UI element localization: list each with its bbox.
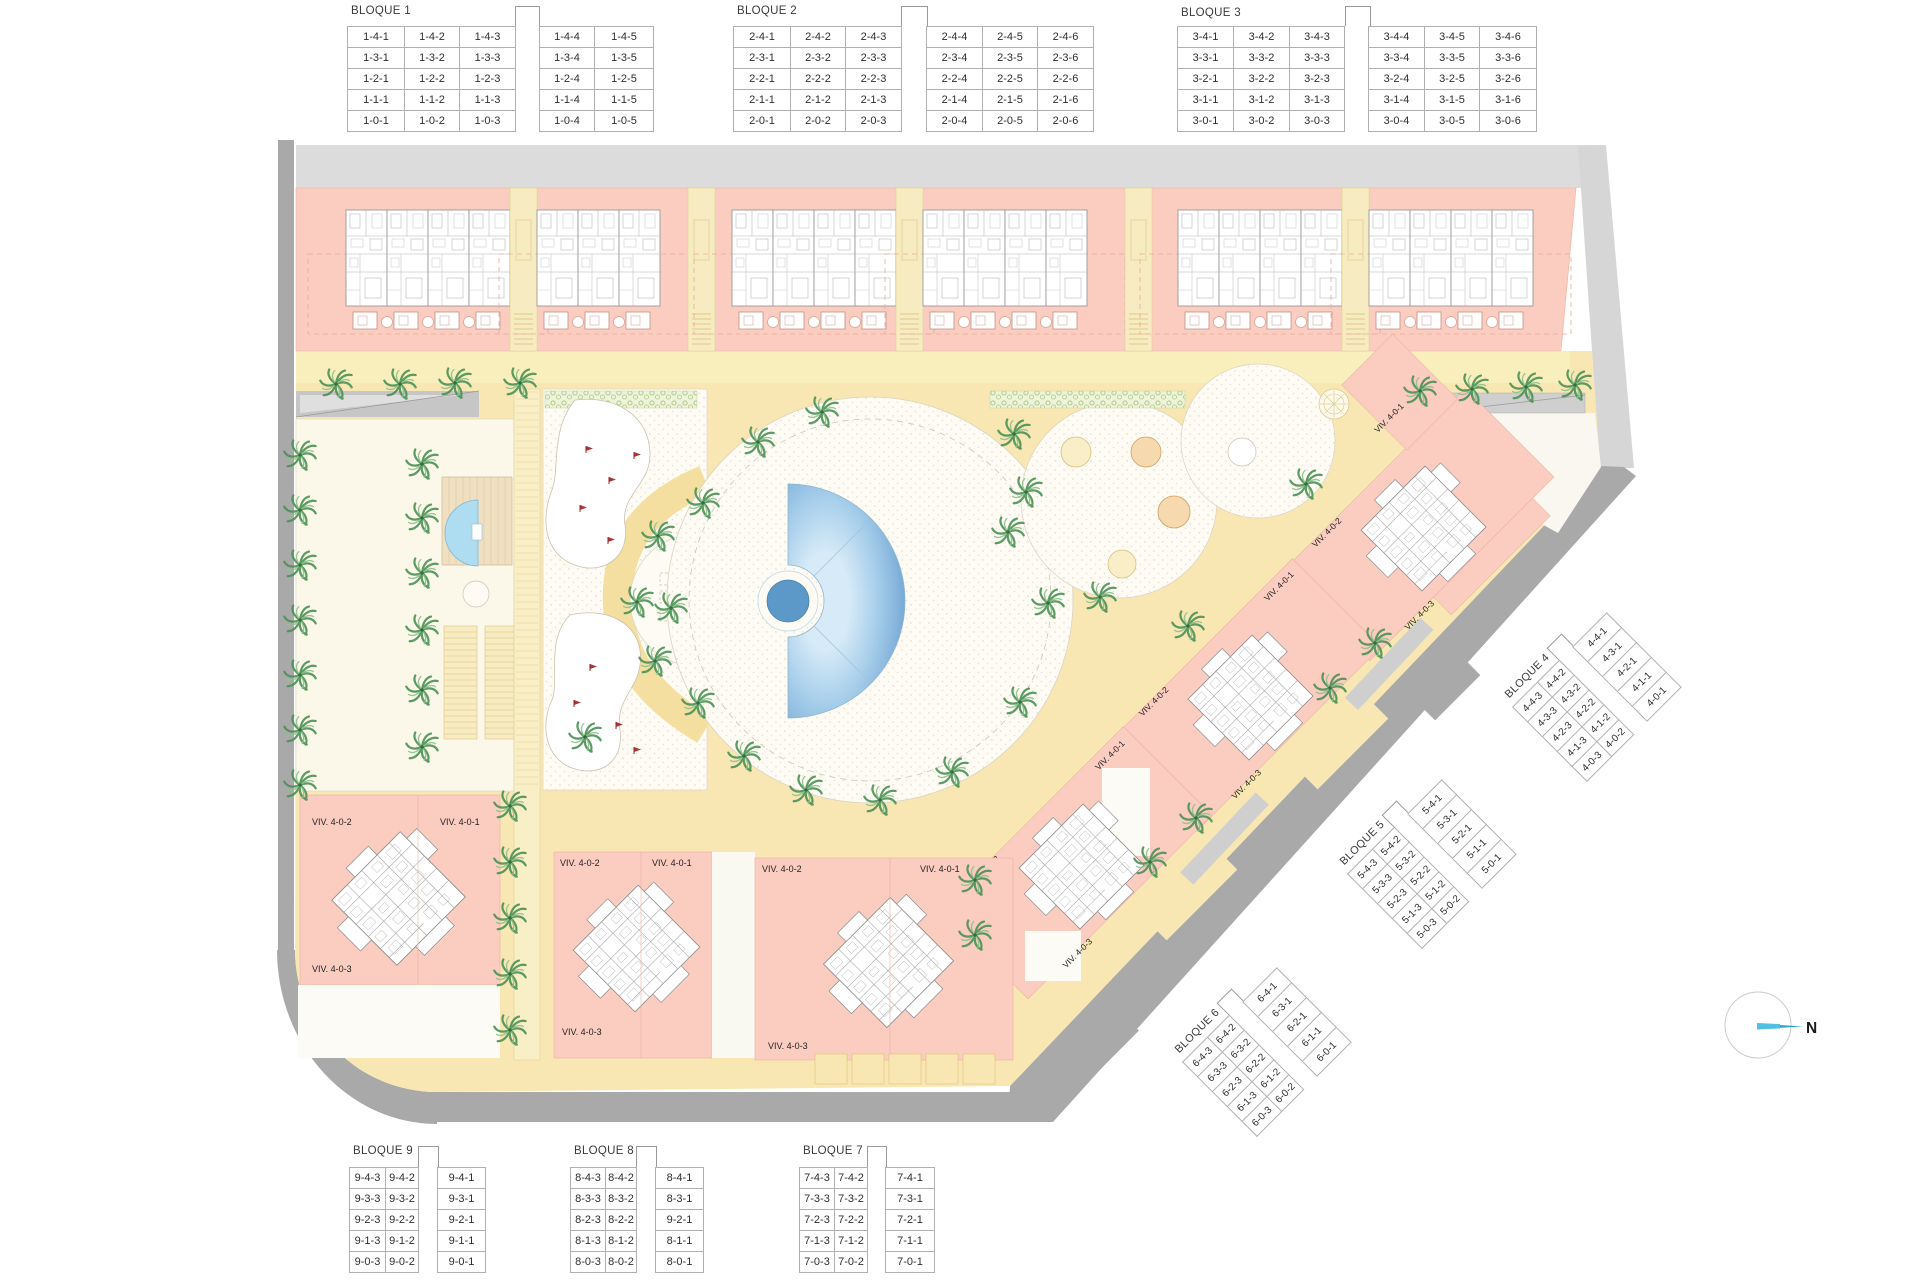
svg-text:N: N (1806, 1020, 1817, 1037)
svg-text:VIV. 4-0-1: VIV. 4-0-1 (440, 817, 480, 827)
svg-text:VIV. 4-0-3: VIV. 4-0-3 (768, 1041, 808, 1051)
svg-text:VIV. 4-0-1: VIV. 4-0-1 (652, 858, 692, 868)
svg-text:VIV. 4-0-2: VIV. 4-0-2 (762, 864, 802, 874)
svg-text:VIV. 4-0-3: VIV. 4-0-3 (562, 1027, 602, 1037)
svg-text:VIV. 4-0-1: VIV. 4-0-1 (920, 864, 960, 874)
svg-text:VIV. 4-0-2: VIV. 4-0-2 (560, 858, 600, 868)
svg-text:VIV. 4-0-3: VIV. 4-0-3 (312, 964, 352, 974)
svg-text:VIV. 4-0-2: VIV. 4-0-2 (312, 817, 352, 827)
